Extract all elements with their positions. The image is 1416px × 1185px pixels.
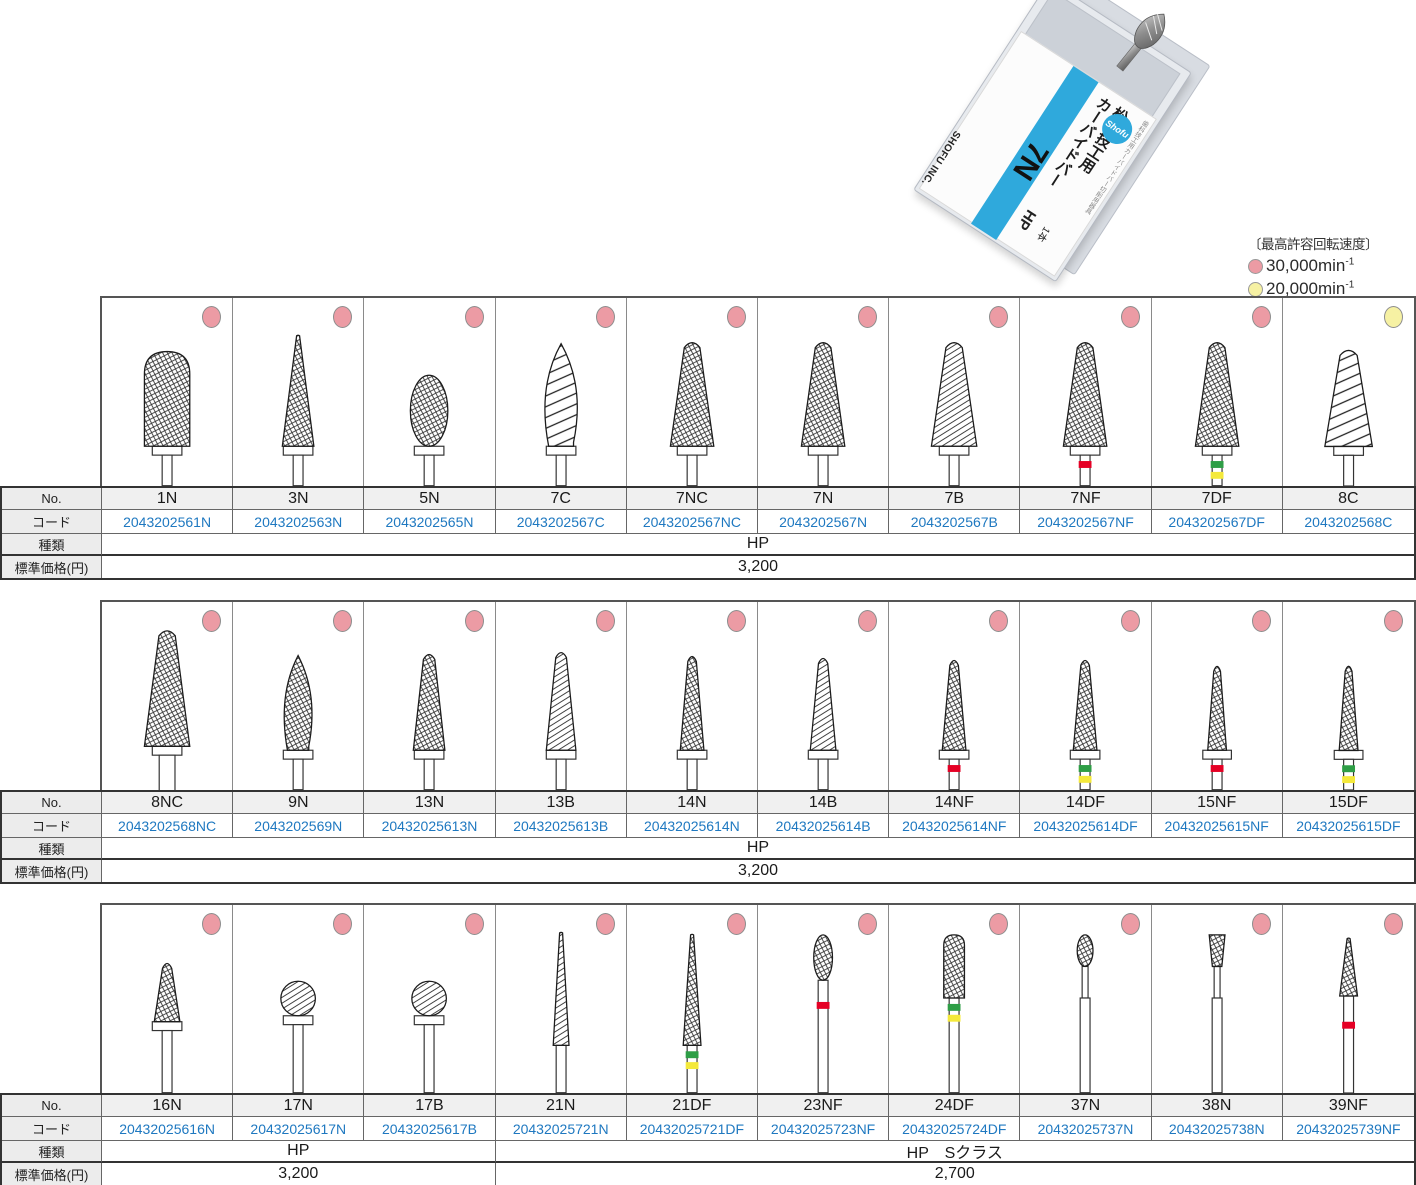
bur-illustration-7B bbox=[889, 298, 1019, 486]
spec-grid: No.1N3N5N7C7NC7N7B7NF7DF8Cコード2043202561N… bbox=[0, 486, 1416, 580]
bur-cell-7NC bbox=[627, 298, 758, 486]
product-code-link[interactable]: 2043202561N bbox=[102, 510, 233, 534]
bur-cell-16N bbox=[102, 905, 233, 1093]
bur-cell-14B bbox=[758, 602, 889, 790]
product-no: 3N bbox=[233, 488, 364, 510]
bur-illustration-1N bbox=[102, 298, 232, 486]
bur-cell-24DF bbox=[889, 905, 1020, 1093]
type-value: HP bbox=[102, 838, 1414, 860]
product-no: 17N bbox=[233, 1095, 364, 1117]
bur-illustration-7NC bbox=[627, 298, 757, 486]
bur-illustration-14B bbox=[758, 602, 888, 790]
yellow-dot-icon bbox=[1248, 282, 1263, 297]
bur-cell-38N bbox=[1152, 905, 1283, 1093]
product-no: 39NF bbox=[1283, 1095, 1414, 1117]
bur-cell-15DF bbox=[1283, 602, 1414, 790]
code-row: コード20432025616N20432025617N20432025617B2… bbox=[2, 1117, 1414, 1141]
bur-illustration-21DF bbox=[627, 905, 757, 1093]
spec-grid: No.16N17N17B21N21DF23NF24DF37N38N39NFコード… bbox=[0, 1093, 1416, 1185]
bur-cell-13B bbox=[496, 602, 627, 790]
bur-cell-9N bbox=[233, 602, 364, 790]
bur-illustration-39NF bbox=[1283, 905, 1414, 1093]
bur-illustration-17B bbox=[364, 905, 494, 1093]
product-no: 7C bbox=[496, 488, 627, 510]
product-code-link[interactable]: 20432025721DF bbox=[627, 1117, 758, 1141]
bur-illustration-17N bbox=[233, 905, 363, 1093]
spec-grid: No.8NC9N13N13B14N14B14NF14DF15NF15DFコード2… bbox=[0, 790, 1416, 884]
product-code-link[interactable]: 20432025617N bbox=[233, 1117, 364, 1141]
product-code-link[interactable]: 2043202568C bbox=[1283, 510, 1414, 534]
price-value: 3,200 bbox=[102, 556, 1414, 578]
bur-illustration-24DF bbox=[889, 905, 1019, 1093]
product-code-link[interactable]: 20432025614B bbox=[758, 814, 889, 838]
product-no: 23NF bbox=[758, 1095, 889, 1117]
bur-cell-17B bbox=[364, 905, 495, 1093]
product-no: 21N bbox=[496, 1095, 627, 1117]
product-no: 15DF bbox=[1283, 792, 1414, 814]
product-code-link[interactable]: 20432025614N bbox=[627, 814, 758, 838]
product-no: 14NF bbox=[889, 792, 1020, 814]
product-code-link[interactable]: 20432025613N bbox=[364, 814, 495, 838]
row-label-code: コード bbox=[2, 814, 102, 838]
bur-cell-7DF bbox=[1152, 298, 1283, 486]
bur-image-row bbox=[100, 296, 1416, 486]
no-row: No.8NC9N13N13B14N14B14NF14DF15NF15DF bbox=[2, 792, 1414, 814]
product-code-link[interactable]: 2043202567DF bbox=[1152, 510, 1283, 534]
no-row: No.16N17N17B21N21DF23NF24DF37N38N39NF bbox=[2, 1095, 1414, 1117]
type-value: HP bbox=[102, 534, 1414, 556]
product-no: 8C bbox=[1283, 488, 1414, 510]
bur-image-row bbox=[100, 600, 1416, 790]
bur-illustration-13N bbox=[364, 602, 494, 790]
product-code-link[interactable]: 2043202567N bbox=[758, 510, 889, 534]
bur-cell-23NF bbox=[758, 905, 889, 1093]
product-no: 38N bbox=[1152, 1095, 1283, 1117]
bur-illustration-8C bbox=[1283, 298, 1414, 486]
product-code-link[interactable]: 20432025739NF bbox=[1283, 1117, 1414, 1141]
row-label-price: 標準価格(円) bbox=[2, 556, 102, 578]
bur-cell-8C bbox=[1283, 298, 1414, 486]
speed-legend: 〔最高許容回転速度〕 30,000min-1 20,000min-1 bbox=[1248, 233, 1414, 299]
product-code-link[interactable]: 2043202567C bbox=[496, 510, 627, 534]
bur-cell-14NF bbox=[889, 602, 1020, 790]
code-row: コード2043202561N2043202563N2043202565N2043… bbox=[2, 510, 1414, 534]
bur-illustration-3N bbox=[233, 298, 363, 486]
product-code-link[interactable]: 2043202565N bbox=[364, 510, 495, 534]
product-no: 7B bbox=[889, 488, 1020, 510]
row-label-no: No. bbox=[2, 792, 102, 814]
bur-cell-14N bbox=[627, 602, 758, 790]
price-value: 3,200 bbox=[102, 1163, 496, 1185]
catalog-page: 7N 松風技工用 カーバイドバー 歯科技工用カーバイドバー切削用器具 HP 1本… bbox=[0, 0, 1416, 1185]
bur-illustration-21N bbox=[496, 905, 626, 1093]
bur-cell-21N bbox=[496, 905, 627, 1093]
row-label-price: 標準価格(円) bbox=[2, 860, 102, 882]
bur-illustration-15DF bbox=[1283, 602, 1414, 790]
bur-illustration-7C bbox=[496, 298, 626, 486]
product-no: 1N bbox=[102, 488, 233, 510]
product-code-link[interactable]: 2043202567NF bbox=[1020, 510, 1151, 534]
product-no: 13N bbox=[364, 792, 495, 814]
package-brand-text: SHOFU INC. bbox=[919, 128, 962, 187]
product-no: 7NC bbox=[627, 488, 758, 510]
product-no: 21DF bbox=[627, 1095, 758, 1117]
bur-illustration-14DF bbox=[1020, 602, 1150, 790]
bur-illustration-13B bbox=[496, 602, 626, 790]
product-no: 17B bbox=[364, 1095, 495, 1117]
product-code-link[interactable]: 20432025615NF bbox=[1152, 814, 1283, 838]
product-no: 14B bbox=[758, 792, 889, 814]
product-no: 7N bbox=[758, 488, 889, 510]
bur-illustration-38N bbox=[1152, 905, 1282, 1093]
bur-image-row bbox=[100, 903, 1416, 1093]
row-label-type: 種類 bbox=[2, 838, 102, 860]
product-code-link[interactable]: 2043202567B bbox=[889, 510, 1020, 534]
bur-illustration-7DF bbox=[1152, 298, 1282, 486]
product-no: 14N bbox=[627, 792, 758, 814]
price-row: 標準価格(円)3,2002,700 bbox=[2, 1163, 1414, 1185]
product-no: 5N bbox=[364, 488, 495, 510]
product-code-link[interactable]: 20432025721N bbox=[496, 1117, 627, 1141]
speed-legend-label: 30,000min-1 bbox=[1266, 256, 1354, 276]
product-code-link[interactable]: 20432025738N bbox=[1152, 1117, 1283, 1141]
bur-cell-5N bbox=[364, 298, 495, 486]
product-no: 7DF bbox=[1152, 488, 1283, 510]
product-code-link[interactable]: 20432025723NF bbox=[758, 1117, 889, 1141]
row-label-code: コード bbox=[2, 510, 102, 534]
catalog-table-3: No.16N17N17B21N21DF23NF24DF37N38N39NFコード… bbox=[0, 903, 1416, 1185]
product-code-link[interactable]: 20432025617B bbox=[364, 1117, 495, 1141]
bur-illustration-37N bbox=[1020, 905, 1150, 1093]
bur-cell-39NF bbox=[1283, 905, 1414, 1093]
bur-cell-7B bbox=[889, 298, 1020, 486]
type-row: 種類HP bbox=[2, 838, 1414, 860]
code-row: コード2043202568NC2043202569N20432025613N20… bbox=[2, 814, 1414, 838]
product-code-link[interactable]: 20432025615DF bbox=[1283, 814, 1414, 838]
row-label-code: コード bbox=[2, 1117, 102, 1141]
type-row: 種類HP bbox=[2, 534, 1414, 556]
product-no: 16N bbox=[102, 1095, 233, 1117]
bur-illustration-9N bbox=[233, 602, 363, 790]
bur-cell-17N bbox=[233, 905, 364, 1093]
bur-illustration-7NF bbox=[1020, 298, 1150, 486]
product-package-photo: 7N 松風技工用 カーバイドバー 歯科技工用カーバイドバー切削用器具 HP 1本… bbox=[905, 0, 1235, 300]
bur-cell-7NF bbox=[1020, 298, 1151, 486]
bur-cell-14DF bbox=[1020, 602, 1151, 790]
speed-legend-title: 〔最高許容回転速度〕 bbox=[1248, 233, 1414, 253]
pink-dot-icon bbox=[1248, 259, 1263, 274]
package-box: 7N 松風技工用 カーバイドバー 歯科技工用カーバイドバー切削用器具 HP 1本… bbox=[912, 0, 1192, 284]
row-label-no: No. bbox=[2, 488, 102, 510]
price-row: 標準価格(円)3,200 bbox=[2, 556, 1414, 578]
row-label-price: 標準価格(円) bbox=[2, 1163, 102, 1185]
product-no: 24DF bbox=[889, 1095, 1020, 1117]
product-code-link[interactable]: 20432025724DF bbox=[889, 1117, 1020, 1141]
product-code-link[interactable]: 20432025614DF bbox=[1020, 814, 1151, 838]
product-no: 9N bbox=[233, 792, 364, 814]
bur-cell-8NC bbox=[102, 602, 233, 790]
row-label-no: No. bbox=[2, 1095, 102, 1117]
bur-cell-21DF bbox=[627, 905, 758, 1093]
bur-cell-1N bbox=[102, 298, 233, 486]
bur-illustration-7N bbox=[758, 298, 888, 486]
speed-legend-item-30000: 30,000min-1 bbox=[1248, 256, 1414, 276]
type-value: HP Sクラス bbox=[496, 1141, 1414, 1163]
product-code-link[interactable]: 20432025616N bbox=[102, 1117, 233, 1141]
bur-illustration-15NF bbox=[1152, 602, 1282, 790]
product-code-link[interactable]: 2043202563N bbox=[233, 510, 364, 534]
no-row: No.1N3N5N7C7NC7N7B7NF7DF8C bbox=[2, 488, 1414, 510]
product-no: 13B bbox=[496, 792, 627, 814]
bur-illustration-14NF bbox=[889, 602, 1019, 790]
catalog-table-1: No.1N3N5N7C7NC7N7B7NF7DF8Cコード2043202561N… bbox=[0, 296, 1416, 580]
bur-illustration-8NC bbox=[102, 602, 232, 790]
bur-cell-13N bbox=[364, 602, 495, 790]
product-no: 37N bbox=[1020, 1095, 1151, 1117]
product-code-link[interactable]: 2043202568NC bbox=[102, 814, 233, 838]
catalog-table-2: No.8NC9N13N13B14N14B14NF14DF15NF15DFコード2… bbox=[0, 600, 1416, 884]
bur-cell-3N bbox=[233, 298, 364, 486]
product-no: 7NF bbox=[1020, 488, 1151, 510]
price-value: 2,700 bbox=[496, 1163, 1414, 1185]
bur-cell-15NF bbox=[1152, 602, 1283, 790]
bur-illustration-5N bbox=[364, 298, 494, 486]
product-code-link[interactable]: 2043202567NC bbox=[627, 510, 758, 534]
bur-illustration-23NF bbox=[758, 905, 888, 1093]
product-code-link[interactable]: 20432025614NF bbox=[889, 814, 1020, 838]
product-code-link[interactable]: 20432025613B bbox=[496, 814, 627, 838]
product-no: 15NF bbox=[1152, 792, 1283, 814]
type-row: 種類HPHP Sクラス bbox=[2, 1141, 1414, 1163]
price-value: 3,200 bbox=[102, 860, 1414, 882]
product-code-link[interactable]: 2043202569N bbox=[233, 814, 364, 838]
bur-cell-37N bbox=[1020, 905, 1151, 1093]
price-row: 標準価格(円)3,200 bbox=[2, 860, 1414, 882]
product-no: 8NC bbox=[102, 792, 233, 814]
bur-illustration-16N bbox=[102, 905, 232, 1093]
bur-cell-7C bbox=[496, 298, 627, 486]
row-label-type: 種類 bbox=[2, 534, 102, 556]
row-label-type: 種類 bbox=[2, 1141, 102, 1163]
bur-cell-7N bbox=[758, 298, 889, 486]
bur-illustration-14N bbox=[627, 602, 757, 790]
product-code-link[interactable]: 20432025737N bbox=[1020, 1117, 1151, 1141]
type-value: HP bbox=[102, 1141, 496, 1163]
product-no: 14DF bbox=[1020, 792, 1151, 814]
